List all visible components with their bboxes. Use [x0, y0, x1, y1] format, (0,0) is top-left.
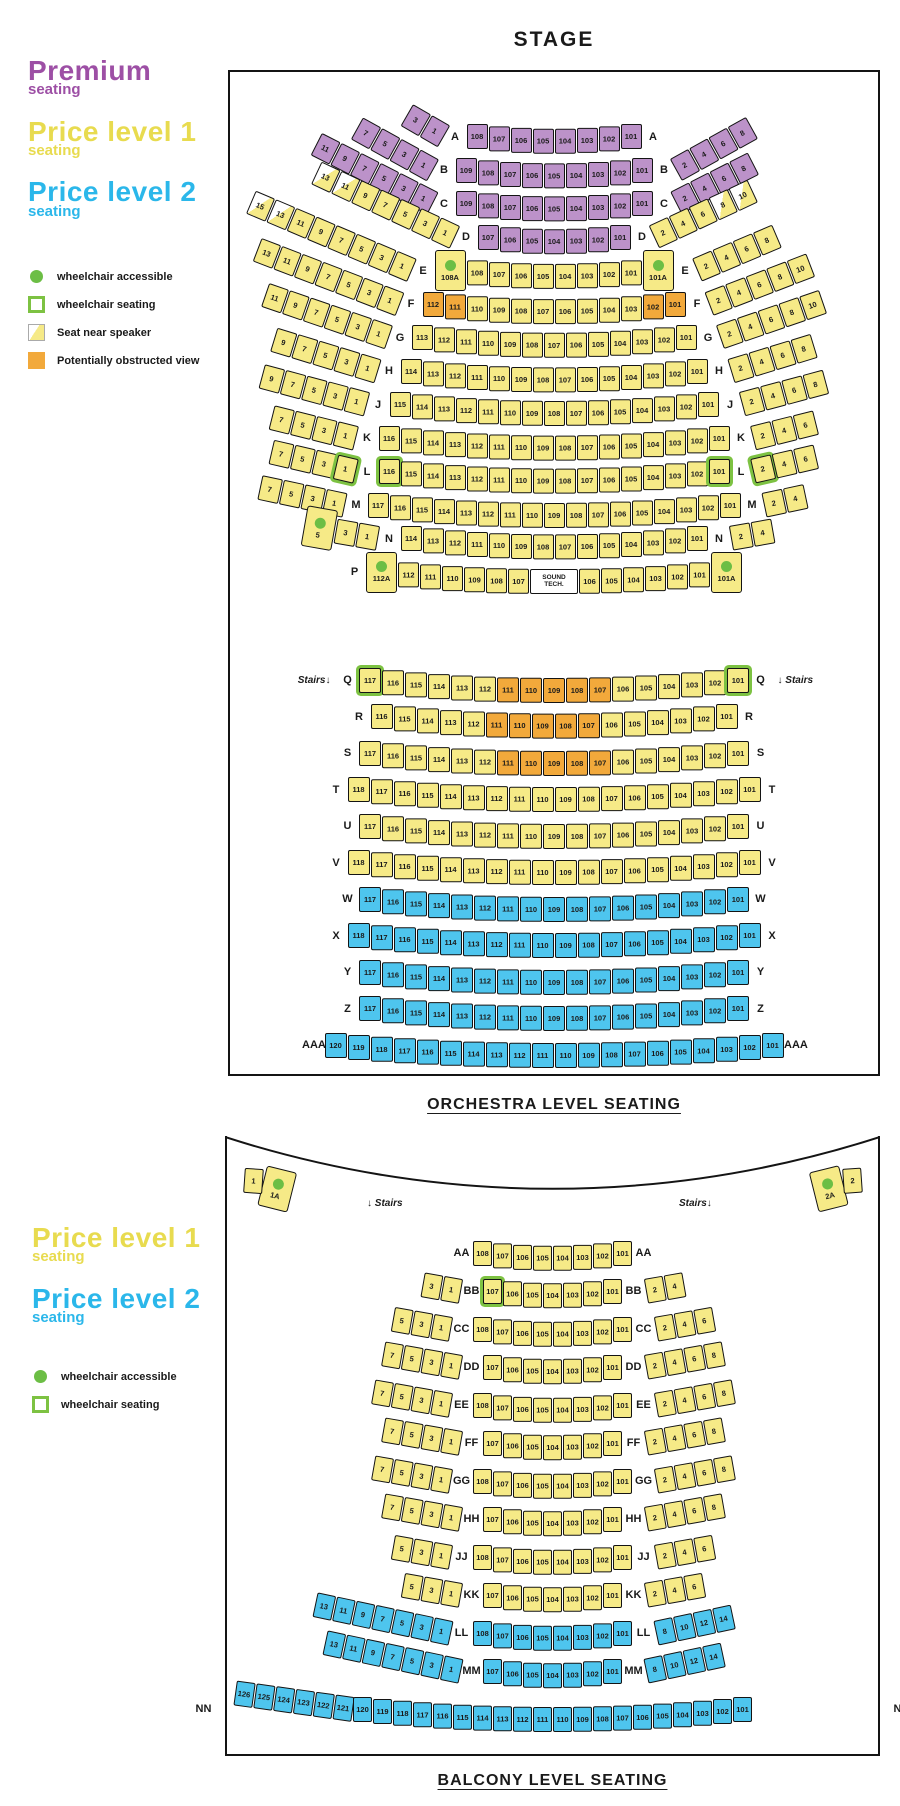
seat-3[interactable]: 3: [419, 1272, 442, 1300]
seat-102[interactable]: 102: [739, 1035, 761, 1060]
seat-105[interactable]: 105: [670, 1039, 692, 1064]
seat-117[interactable]: 117: [359, 741, 381, 766]
seat-102[interactable]: 102: [716, 925, 738, 950]
seat-115[interactable]: 115: [417, 929, 439, 954]
seat-106[interactable]: 106: [513, 1244, 532, 1269]
seat-104[interactable]: 104: [566, 196, 587, 221]
seat-8[interactable]: 8: [702, 1417, 725, 1445]
seat-117[interactable]: 117: [371, 852, 393, 877]
seat-102[interactable]: 102: [693, 707, 715, 732]
seat-3[interactable]: 3: [419, 1348, 442, 1376]
seat-102[interactable]: 102: [583, 1661, 602, 1686]
seat-106[interactable]: 106: [624, 932, 646, 957]
seat-114[interactable]: 114: [428, 1002, 450, 1027]
seat-114[interactable]: 114: [428, 747, 450, 772]
seat-104[interactable]: 104: [553, 1245, 572, 1270]
seat-5[interactable]: 5: [300, 505, 338, 551]
seat-115[interactable]: 115: [394, 707, 416, 732]
seat-122[interactable]: 122: [312, 1691, 334, 1718]
seat-101[interactable]: 101: [733, 1697, 752, 1722]
seat-113[interactable]: 113: [451, 821, 473, 846]
seat-115[interactable]: 115: [405, 891, 427, 916]
seat-1[interactable]: 1: [439, 1579, 462, 1607]
seat-107[interactable]: 107: [483, 1355, 502, 1380]
seat-111[interactable]: 111: [532, 1043, 554, 1068]
seat-108[interactable]: 108: [486, 568, 507, 593]
seat-106[interactable]: 106: [522, 196, 543, 221]
seat-113[interactable]: 113: [486, 1042, 508, 1067]
seat-116[interactable]: 116: [382, 670, 404, 695]
seat-102[interactable]: 102: [610, 160, 631, 185]
seat-105[interactable]: 105: [635, 748, 657, 773]
seat-110[interactable]: 110: [478, 331, 499, 356]
seat-110[interactable]: 110: [553, 1707, 572, 1732]
seat-7[interactable]: 7: [370, 1455, 393, 1483]
seat-101[interactable]: 101: [727, 814, 749, 839]
seat-106[interactable]: 106: [503, 1281, 522, 1306]
seat-105[interactable]: 105: [601, 568, 622, 593]
seat-116[interactable]: 116: [379, 426, 400, 451]
seat-8[interactable]: 8: [642, 1655, 666, 1683]
seat-6[interactable]: 6: [682, 1572, 705, 1600]
seat-4[interactable]: 4: [663, 1272, 686, 1300]
seat-102[interactable]: 102: [599, 127, 620, 152]
seat-111[interactable]: 111: [533, 1707, 552, 1732]
seat-105[interactable]: 105: [635, 1004, 657, 1029]
seat-101[interactable]: 101: [613, 1469, 632, 1494]
seat-102[interactable]: 102: [588, 227, 609, 252]
seat-105[interactable]: 105: [533, 1397, 552, 1422]
seat-103[interactable]: 103: [645, 566, 666, 591]
seat-114[interactable]: 114: [417, 709, 439, 734]
seat-2[interactable]: 2: [653, 1313, 676, 1341]
seat-101[interactable]: 101: [739, 777, 761, 802]
seat-107[interactable]: 107: [613, 1705, 632, 1730]
seat-102[interactable]: 102: [643, 294, 664, 319]
seat-104[interactable]: 104: [543, 1359, 562, 1384]
seat-105[interactable]: 105: [523, 1358, 542, 1383]
seat-2[interactable]: 2: [761, 489, 787, 518]
seat-109[interactable]: 109: [464, 567, 485, 592]
seat-103[interactable]: 103: [693, 854, 715, 879]
seat-115[interactable]: 115: [405, 964, 427, 989]
seat-102[interactable]: 102: [716, 852, 738, 877]
seat-102[interactable]: 102: [687, 428, 708, 453]
seat-101[interactable]: 101: [709, 426, 730, 451]
seat-118[interactable]: 118: [348, 777, 370, 802]
seat-8[interactable]: 8: [652, 1617, 676, 1645]
seat-105[interactable]: 105: [635, 821, 657, 846]
seat-1[interactable]: 1: [439, 1351, 462, 1379]
seat-108[interactable]: 108: [473, 1469, 492, 1494]
seat-5[interactable]: 5: [390, 1458, 413, 1486]
seat-111[interactable]: 111: [486, 713, 508, 738]
seat-114[interactable]: 114: [423, 464, 444, 489]
seat-124[interactable]: 124: [272, 1686, 294, 1713]
seat-101[interactable]: 101: [762, 1033, 784, 1058]
seat-117[interactable]: 117: [359, 668, 381, 693]
seat-102[interactable]: 102: [583, 1509, 602, 1534]
seat-101[interactable]: 101: [727, 741, 749, 766]
seat-101[interactable]: 101: [632, 191, 653, 216]
seat-105[interactable]: 105: [544, 163, 565, 188]
seat-112[interactable]: 112: [434, 328, 455, 353]
seat-104[interactable]: 104: [658, 1002, 680, 1027]
seat-104[interactable]: 104: [553, 1549, 572, 1574]
seat-116[interactable]: 116: [433, 1703, 452, 1728]
seat-3[interactable]: 3: [419, 1424, 442, 1452]
seat-116[interactable]: 116: [417, 1039, 439, 1064]
seat-115[interactable]: 115: [401, 428, 422, 453]
seat-104[interactable]: 104: [693, 1038, 715, 1063]
seat-106[interactable]: 106: [503, 1585, 522, 1610]
seat-105[interactable]: 105: [533, 1245, 552, 1270]
seat-6[interactable]: 6: [793, 445, 819, 474]
seat-1[interactable]: 1: [429, 1313, 452, 1341]
seat-116[interactable]: 116: [382, 816, 404, 841]
seat-101[interactable]: 101: [603, 1279, 622, 1304]
seat-3[interactable]: 3: [333, 519, 358, 547]
seat-126[interactable]: 126: [232, 1680, 254, 1707]
seat-119[interactable]: 119: [348, 1035, 370, 1060]
seat-101[interactable]: 101: [613, 1545, 632, 1570]
seat-102[interactable]: 102: [667, 564, 688, 589]
seat-105[interactable]: 105: [523, 1662, 542, 1687]
seat-2[interactable]: 2: [653, 1541, 676, 1569]
seat-103[interactable]: 103: [588, 162, 609, 187]
seat-117[interactable]: 117: [359, 814, 381, 839]
seat-102[interactable]: 102: [665, 361, 686, 386]
seat-3[interactable]: 3: [409, 1462, 432, 1490]
seat-114[interactable]: 114: [428, 966, 450, 991]
seat-102[interactable]: 102: [704, 962, 726, 987]
seat-101[interactable]: 101: [603, 1507, 622, 1532]
seat-115[interactable]: 115: [401, 462, 422, 487]
seat-104[interactable]: 104: [610, 331, 631, 356]
seat-113[interactable]: 113: [451, 748, 473, 773]
seat-106[interactable]: 106: [503, 1509, 522, 1534]
seat-106[interactable]: 106: [633, 1704, 652, 1729]
seat-103[interactable]: 103: [681, 745, 703, 770]
seat-1[interactable]: 1: [429, 1389, 452, 1417]
seat-3[interactable]: 3: [409, 1538, 432, 1566]
seat-112[interactable]: 112: [456, 398, 477, 423]
seat-108[interactable]: 108: [601, 1042, 623, 1067]
seat-102[interactable]: 102: [687, 462, 708, 487]
seat-108[interactable]: 108: [593, 1706, 612, 1731]
seat-102[interactable]: 102: [713, 1699, 732, 1724]
seat-118[interactable]: 118: [371, 1037, 393, 1062]
seat-113[interactable]: 113: [451, 1004, 473, 1029]
seat-112[interactable]: 112: [509, 1043, 531, 1068]
seat-114[interactable]: 114: [434, 499, 455, 524]
seat-5[interactable]: 5: [400, 1572, 423, 1600]
seat-104[interactable]: 104: [553, 1321, 572, 1346]
seat-113[interactable]: 113: [434, 397, 455, 422]
seat-103[interactable]: 103: [573, 1548, 592, 1573]
seat-4[interactable]: 4: [673, 1538, 696, 1566]
seat-101A[interactable]: 101A: [711, 552, 742, 593]
seat-2[interactable]: 2: [842, 1168, 863, 1194]
seat-8[interactable]: 8: [712, 1455, 735, 1483]
seat-101[interactable]: 101: [727, 668, 749, 693]
seat-103[interactable]: 103: [693, 927, 715, 952]
seat-2[interactable]: 2: [643, 1503, 666, 1531]
seat-102[interactable]: 102: [599, 262, 620, 287]
seat-109[interactable]: 109: [489, 297, 510, 322]
seat-125[interactable]: 125: [252, 1683, 274, 1710]
seat-103[interactable]: 103: [693, 781, 715, 806]
seat-2[interactable]: 2: [643, 1351, 666, 1379]
seat-110[interactable]: 110: [555, 1043, 577, 1068]
seat-105[interactable]: 105: [647, 857, 669, 882]
seat-101[interactable]: 101: [613, 1393, 632, 1418]
seat-112[interactable]: 112: [445, 363, 466, 388]
seat-101[interactable]: 101: [603, 1355, 622, 1380]
seat-8[interactable]: 8: [712, 1379, 735, 1407]
seat-115[interactable]: 115: [453, 1704, 472, 1729]
seat-1[interactable]: 1: [243, 1168, 264, 1194]
seat-4[interactable]: 4: [663, 1424, 686, 1452]
seat-104[interactable]: 104: [658, 966, 680, 991]
seat-104[interactable]: 104: [543, 1435, 562, 1460]
seat-106[interactable]: 106: [513, 1472, 532, 1497]
seat-7[interactable]: 7: [370, 1379, 393, 1407]
seat-103[interactable]: 103: [577, 264, 598, 289]
seat-103[interactable]: 103: [654, 397, 675, 422]
seat-103[interactable]: 103: [588, 195, 609, 220]
seat-4[interactable]: 4: [663, 1500, 686, 1528]
seat-103[interactable]: 103: [563, 1510, 582, 1535]
seat-105[interactable]: 105: [533, 1549, 552, 1574]
seat-6[interactable]: 6: [692, 1458, 715, 1486]
seat-103[interactable]: 103: [693, 1700, 712, 1725]
seat-117[interactable]: 117: [371, 779, 393, 804]
seat-113[interactable]: 113: [445, 432, 466, 457]
seat-118[interactable]: 118: [348, 850, 370, 875]
seat-101[interactable]: 101: [603, 1659, 622, 1684]
seat-107[interactable]: 107: [483, 1583, 502, 1608]
seat-120[interactable]: 120: [353, 1697, 372, 1722]
seat-117[interactable]: 117: [359, 887, 381, 912]
seat-112[interactable]: 112: [463, 712, 485, 737]
seat-113[interactable]: 113: [463, 859, 485, 884]
seat-5[interactable]: 5: [390, 1382, 413, 1410]
seat-111[interactable]: 111: [445, 294, 466, 319]
seat-1[interactable]: 1: [355, 523, 380, 551]
seat-116[interactable]: 116: [390, 495, 411, 520]
seat-113[interactable]: 113: [463, 786, 485, 811]
seat-114[interactable]: 114: [412, 395, 433, 420]
seat-108[interactable]: 108: [478, 160, 499, 185]
seat-116[interactable]: 116: [394, 927, 416, 952]
seat-114[interactable]: 114: [473, 1705, 492, 1730]
seat-116[interactable]: 116: [382, 962, 404, 987]
seat-5[interactable]: 5: [390, 1534, 413, 1562]
seat-104[interactable]: 104: [543, 1663, 562, 1688]
seat-102[interactable]: 102: [593, 1547, 612, 1572]
seat-102[interactable]: 102: [593, 1243, 612, 1268]
seat-105[interactable]: 105: [523, 1282, 542, 1307]
seat-115[interactable]: 115: [405, 745, 427, 770]
seat-117[interactable]: 117: [371, 925, 393, 950]
seat-104[interactable]: 104: [623, 567, 644, 592]
seat-116[interactable]: 116: [394, 854, 416, 879]
seat-107[interactable]: 107: [478, 225, 499, 250]
seat-101[interactable]: 101: [727, 887, 749, 912]
seat-104[interactable]: 104: [673, 1702, 692, 1727]
seat-104[interactable]: 104: [647, 710, 669, 735]
seat-115[interactable]: 115: [412, 497, 433, 522]
seat-104[interactable]: 104: [553, 1473, 572, 1498]
seat-108[interactable]: 108: [473, 1241, 492, 1266]
seat-115[interactable]: 115: [405, 818, 427, 843]
seat-103[interactable]: 103: [577, 128, 598, 153]
seat-103[interactable]: 103: [665, 464, 686, 489]
seat-101[interactable]: 101: [665, 292, 686, 317]
seat-103[interactable]: 103: [573, 1624, 592, 1649]
seat-101[interactable]: 101: [739, 850, 761, 875]
seat-101[interactable]: 101: [698, 392, 719, 417]
seat-116[interactable]: 116: [379, 459, 400, 484]
seat-101[interactable]: 101: [613, 1241, 632, 1266]
seat-113[interactable]: 113: [463, 932, 485, 957]
seat-104[interactable]: 104: [555, 264, 576, 289]
seat-103[interactable]: 103: [632, 330, 653, 355]
seat-121[interactable]: 121: [331, 1694, 353, 1721]
seat-114[interactable]: 114: [428, 820, 450, 845]
seat-113[interactable]: 113: [451, 894, 473, 919]
seat-107[interactable]: 107: [483, 1431, 502, 1456]
seat-1[interactable]: 1: [332, 455, 358, 484]
seat-106[interactable]: 106: [579, 569, 600, 594]
seat-118[interactable]: 118: [393, 1700, 412, 1725]
seat-107[interactable]: 107: [493, 1395, 512, 1420]
seat-105[interactable]: 105: [533, 264, 554, 289]
seat-13[interactable]: 13: [311, 1592, 335, 1620]
seat-5[interactable]: 5: [400, 1344, 423, 1372]
seat-103[interactable]: 103: [563, 1282, 582, 1307]
seat-5[interactable]: 5: [390, 1306, 413, 1334]
seat-105[interactable]: 105: [523, 1510, 542, 1535]
seat-3[interactable]: 3: [409, 1386, 432, 1414]
seat-4[interactable]: 4: [673, 1386, 696, 1414]
seat-102[interactable]: 102: [716, 779, 738, 804]
seat-113[interactable]: 113: [412, 325, 433, 350]
seat-109[interactable]: 109: [573, 1706, 592, 1731]
seat-103[interactable]: 103: [681, 891, 703, 916]
seat-102[interactable]: 102: [593, 1471, 612, 1496]
seat-2[interactable]: 2: [643, 1579, 666, 1607]
seat-1[interactable]: 1: [439, 1427, 462, 1455]
seat-106[interactable]: 106: [624, 786, 646, 811]
seat-115[interactable]: 115: [417, 856, 439, 881]
seat-115[interactable]: 115: [405, 672, 427, 697]
seat-117[interactable]: 117: [359, 996, 381, 1021]
seat-111[interactable]: 111: [420, 564, 441, 589]
seat-105[interactable]: 105: [533, 1321, 552, 1346]
seat-104[interactable]: 104: [670, 783, 692, 808]
seat-102[interactable]: 102: [698, 495, 719, 520]
seat-105[interactable]: 105: [533, 1473, 552, 1498]
seat-106[interactable]: 106: [624, 859, 646, 884]
seat-5[interactable]: 5: [400, 1496, 423, 1524]
seat-107[interactable]: 107: [493, 1319, 512, 1344]
seat-103[interactable]: 103: [621, 296, 642, 321]
seat-103[interactable]: 103: [676, 497, 697, 522]
seat-101[interactable]: 101: [603, 1431, 622, 1456]
seat-113[interactable]: 113: [423, 361, 444, 386]
seat-102[interactable]: 102: [610, 194, 631, 219]
seat-102[interactable]: 102: [665, 529, 686, 554]
seat-106[interactable]: 106: [647, 1041, 669, 1066]
seat-102[interactable]: 102: [704, 889, 726, 914]
seat-102[interactable]: 102: [583, 1357, 602, 1382]
seat-104[interactable]: 104: [654, 499, 675, 524]
seat-107[interactable]: 107: [493, 1243, 512, 1268]
seat-103[interactable]: 103: [563, 1434, 582, 1459]
seat-2[interactable]: 2: [728, 523, 753, 551]
seat-101[interactable]: 101: [632, 158, 653, 183]
seat-106[interactable]: 106: [513, 1396, 532, 1421]
seat-3[interactable]: 3: [419, 1500, 442, 1528]
seat-107[interactable]: 107: [483, 1659, 502, 1684]
seat-104[interactable]: 104: [566, 163, 587, 188]
seat-8[interactable]: 8: [702, 1493, 725, 1521]
seat-114[interactable]: 114: [463, 1041, 485, 1066]
seat-105[interactable]: 105: [653, 1703, 672, 1728]
seat-103[interactable]: 103: [573, 1396, 592, 1421]
seat-114[interactable]: 114: [428, 674, 450, 699]
seat-1[interactable]: 1: [429, 1541, 452, 1569]
seat-104[interactable]: 104: [632, 398, 653, 423]
seat-101[interactable]: 101: [689, 562, 710, 587]
seat-104[interactable]: 104: [670, 929, 692, 954]
seat-112[interactable]: 112: [423, 292, 444, 317]
seat-114[interactable]: 114: [440, 857, 462, 882]
seat-101[interactable]: 101: [727, 960, 749, 985]
seat-101[interactable]: 101: [739, 923, 761, 948]
seat-13[interactable]: 13: [321, 1630, 345, 1658]
seat-5[interactable]: 5: [400, 1420, 423, 1448]
seat-102[interactable]: 102: [654, 328, 675, 353]
seat-1[interactable]: 1: [439, 1275, 462, 1303]
seat-1[interactable]: 1: [439, 1503, 462, 1531]
seat-103[interactable]: 103: [681, 1001, 703, 1026]
seat-110[interactable]: 110: [467, 296, 488, 321]
seat-103[interactable]: 103: [665, 430, 686, 455]
seat-101[interactable]: 101: [621, 261, 642, 286]
seat-106[interactable]: 106: [601, 713, 623, 738]
seat-115[interactable]: 115: [390, 392, 411, 417]
seat-107[interactable]: 107: [500, 195, 521, 220]
seat-104[interactable]: 104: [643, 465, 664, 490]
seat-103[interactable]: 103: [573, 1472, 592, 1497]
seat-104[interactable]: 104: [658, 747, 680, 772]
seat-108[interactable]: 108: [473, 1621, 492, 1646]
seat-106[interactable]: 106: [503, 1357, 522, 1382]
seat-102[interactable]: 102: [704, 670, 726, 695]
seat-114[interactable]: 114: [440, 930, 462, 955]
seat-113[interactable]: 113: [451, 675, 473, 700]
seat-101[interactable]: 101: [610, 225, 631, 250]
seat-108[interactable]: 108: [511, 298, 532, 323]
seat-103[interactable]: 103: [563, 1586, 582, 1611]
seat-106[interactable]: 106: [503, 1433, 522, 1458]
seat-115[interactable]: 115: [405, 1001, 427, 1026]
seat-108[interactable]: 108: [478, 194, 499, 219]
seat-7[interactable]: 7: [380, 1341, 403, 1369]
